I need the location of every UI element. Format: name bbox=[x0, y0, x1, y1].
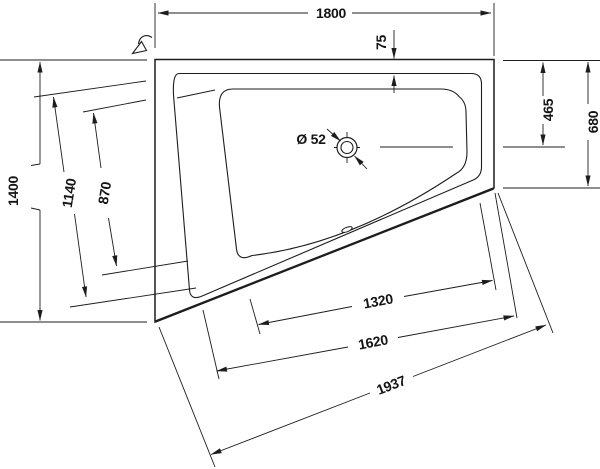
dim-line bbox=[259, 307, 353, 325]
extension-line bbox=[498, 193, 553, 333]
dimension-outer-bottom: 1937 bbox=[159, 193, 553, 467]
drain-symbol: Ø 52 bbox=[296, 129, 367, 169]
dim-label: 1937 bbox=[374, 372, 408, 398]
drain-leader-lower bbox=[355, 156, 368, 169]
dim-line bbox=[217, 347, 349, 371]
extension-line bbox=[70, 288, 196, 307]
drain-leader-upper bbox=[327, 129, 341, 141]
dim-line bbox=[94, 113, 102, 168]
view-direction-arrow-icon bbox=[133, 36, 153, 54]
extension-line bbox=[203, 310, 219, 379]
dim-label: 465 bbox=[540, 98, 556, 121]
drain-diameter-label: Ø 52 bbox=[296, 131, 326, 147]
extension-line bbox=[159, 327, 215, 467]
dim-line bbox=[404, 281, 493, 297]
dim-line bbox=[211, 393, 370, 455]
dimension-top-width: 1800 bbox=[155, 3, 494, 56]
dim-line bbox=[398, 316, 514, 338]
view-arrow-head bbox=[133, 42, 147, 54]
headrest-corner-line bbox=[177, 90, 215, 98]
extension-line bbox=[495, 193, 517, 318]
dimension-right-side: 465 680 bbox=[380, 61, 600, 189]
dimension-backrest-basin: 870 bbox=[83, 100, 188, 275]
dimension-rim-bottom: 1620 bbox=[203, 193, 517, 379]
tub-front-edge bbox=[156, 189, 494, 322]
dim-line bbox=[54, 97, 65, 172]
dim-line bbox=[75, 214, 87, 297]
dim-label: 870 bbox=[95, 180, 114, 205]
leader-stub bbox=[31, 164, 40, 166]
dim-label: 1140 bbox=[59, 177, 79, 209]
tub-outer-outline bbox=[155, 60, 494, 323]
bathtub-drawing-svg: Ø 52 1800 75 465 680 bbox=[0, 0, 600, 469]
dim-label: 1800 bbox=[316, 5, 346, 21]
dim-label: 1320 bbox=[362, 290, 395, 311]
extension-line bbox=[102, 261, 188, 275]
extension-line bbox=[83, 100, 146, 112]
extension-line bbox=[34, 81, 146, 97]
leader-stub bbox=[31, 208, 40, 210]
dim-line bbox=[413, 325, 546, 377]
dim-line bbox=[109, 218, 117, 266]
dim-label: 75 bbox=[373, 35, 389, 50]
dim-label: 1620 bbox=[357, 331, 390, 352]
dim-label: 1400 bbox=[5, 176, 21, 206]
dim-label: 680 bbox=[585, 110, 600, 133]
extension-line bbox=[480, 203, 496, 290]
bathtub-outline-group bbox=[155, 60, 494, 323]
dimension-rim-top-offset: 75 bbox=[373, 30, 394, 93]
extension-line bbox=[250, 299, 260, 334]
technical-drawing-canvas: Ø 52 1800 75 465 680 bbox=[0, 0, 600, 469]
